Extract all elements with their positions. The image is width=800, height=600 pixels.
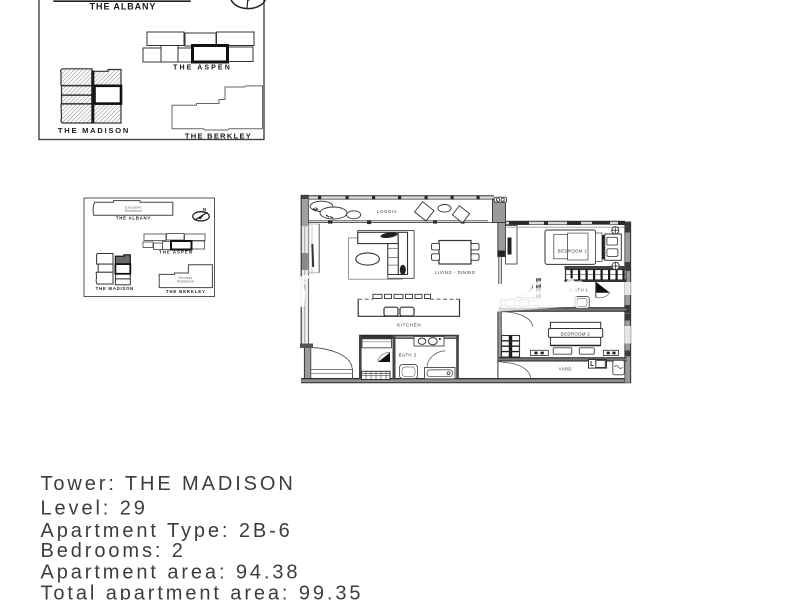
svg-text:KITCHEN: KITCHEN bbox=[397, 323, 421, 328]
svg-text:Residence: Residence bbox=[177, 279, 194, 283]
svg-text:LIVING - DINING: LIVING - DINING bbox=[435, 270, 476, 275]
svg-text:THE BERKLEY: THE BERKLEY bbox=[185, 132, 252, 141]
svg-text:BATH 2: BATH 2 bbox=[399, 352, 417, 357]
svg-text:Bedrooms: 2: Bedrooms: 2 bbox=[41, 540, 186, 562]
svg-text:THE ALBANY: THE ALBANY bbox=[90, 1, 157, 11]
svg-text:Total apartment area: 99.35: Total apartment area: 99.35 bbox=[41, 583, 364, 600]
svg-text:Tower: THE MADISON: Tower: THE MADISON bbox=[41, 473, 296, 495]
svg-text:LOGGIA: LOGGIA bbox=[377, 209, 397, 214]
svg-text:N: N bbox=[203, 207, 207, 212]
svg-text:THE BERKLEY: THE BERKLEY bbox=[166, 289, 206, 294]
svg-text:Residence: Residence bbox=[125, 209, 143, 213]
svg-text:YARD: YARD bbox=[559, 367, 572, 372]
svg-text:THE MADISON: THE MADISON bbox=[58, 126, 130, 135]
svg-text:THE ALBANY: THE ALBANY bbox=[116, 215, 151, 220]
svg-text:THE ASPEN: THE ASPEN bbox=[159, 250, 193, 255]
svg-text:Apartment area: 94.38: Apartment area: 94.38 bbox=[41, 561, 301, 583]
svg-text:BEDROOM 1: BEDROOM 1 bbox=[558, 248, 588, 253]
svg-text:Level: 29: Level: 29 bbox=[41, 497, 148, 519]
svg-text:Apartment Type: 2B-6: Apartment Type: 2B-6 bbox=[41, 520, 293, 542]
svg-text:BEDROOM 2: BEDROOM 2 bbox=[561, 331, 591, 336]
svg-text:THE MADISON: THE MADISON bbox=[96, 286, 134, 291]
svg-text:THE ASPEN: THE ASPEN bbox=[173, 64, 232, 71]
